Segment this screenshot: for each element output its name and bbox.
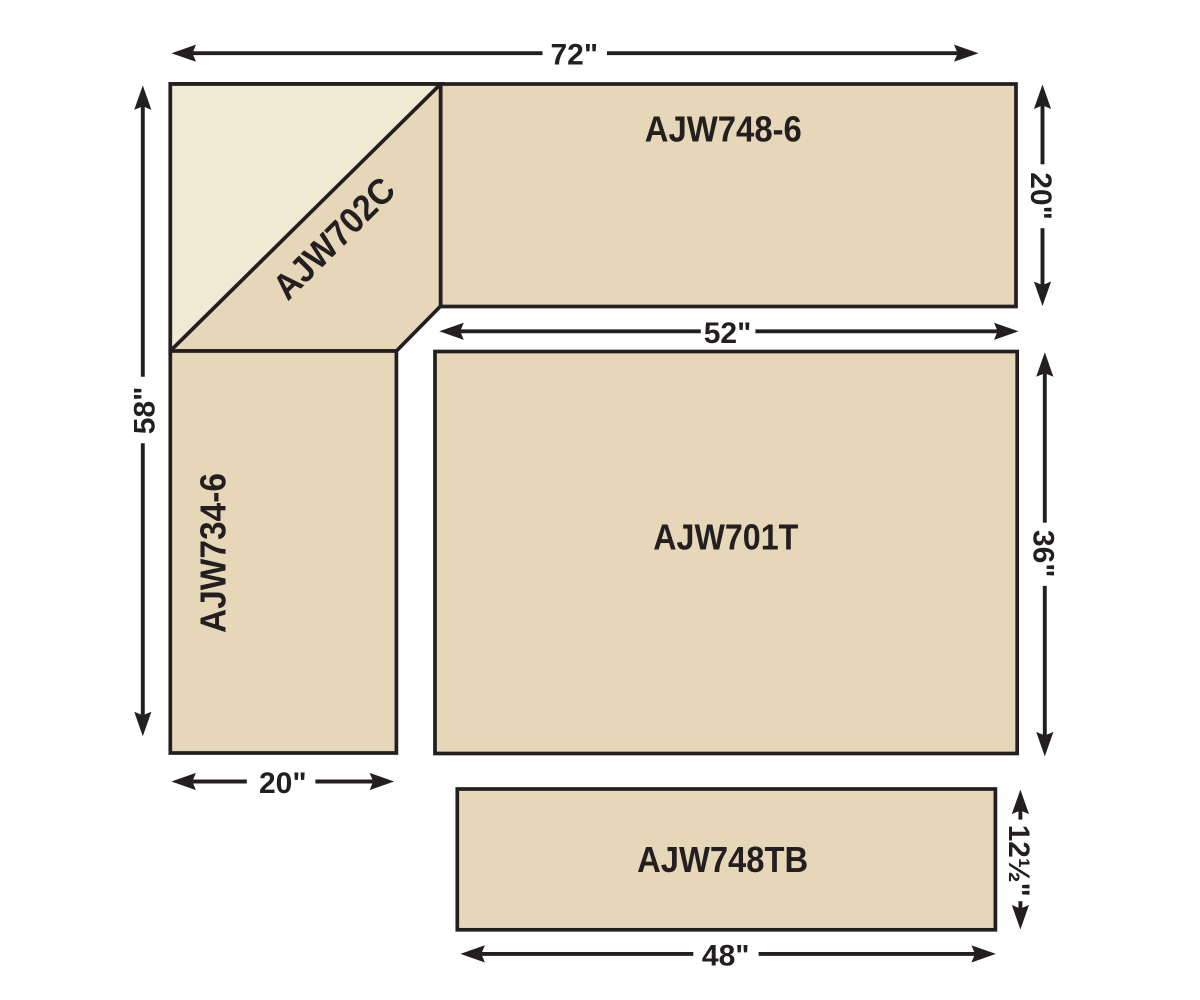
svg-text:72": 72" bbox=[551, 39, 599, 72]
svg-text:52": 52" bbox=[704, 317, 752, 350]
svg-text:AJW748TB: AJW748TB bbox=[637, 839, 808, 880]
svg-text:36": 36" bbox=[1026, 530, 1059, 578]
svg-text:58": 58" bbox=[128, 387, 161, 435]
svg-text:12½": 12½" bbox=[1002, 825, 1035, 897]
svg-text:AJW748-6: AJW748-6 bbox=[645, 108, 802, 149]
svg-text:AJW734-6: AJW734-6 bbox=[192, 473, 233, 633]
svg-text:AJW701T: AJW701T bbox=[653, 516, 798, 557]
svg-text:20": 20" bbox=[1024, 172, 1057, 220]
svg-text:48": 48" bbox=[702, 939, 750, 972]
svg-text:20": 20" bbox=[259, 767, 307, 800]
